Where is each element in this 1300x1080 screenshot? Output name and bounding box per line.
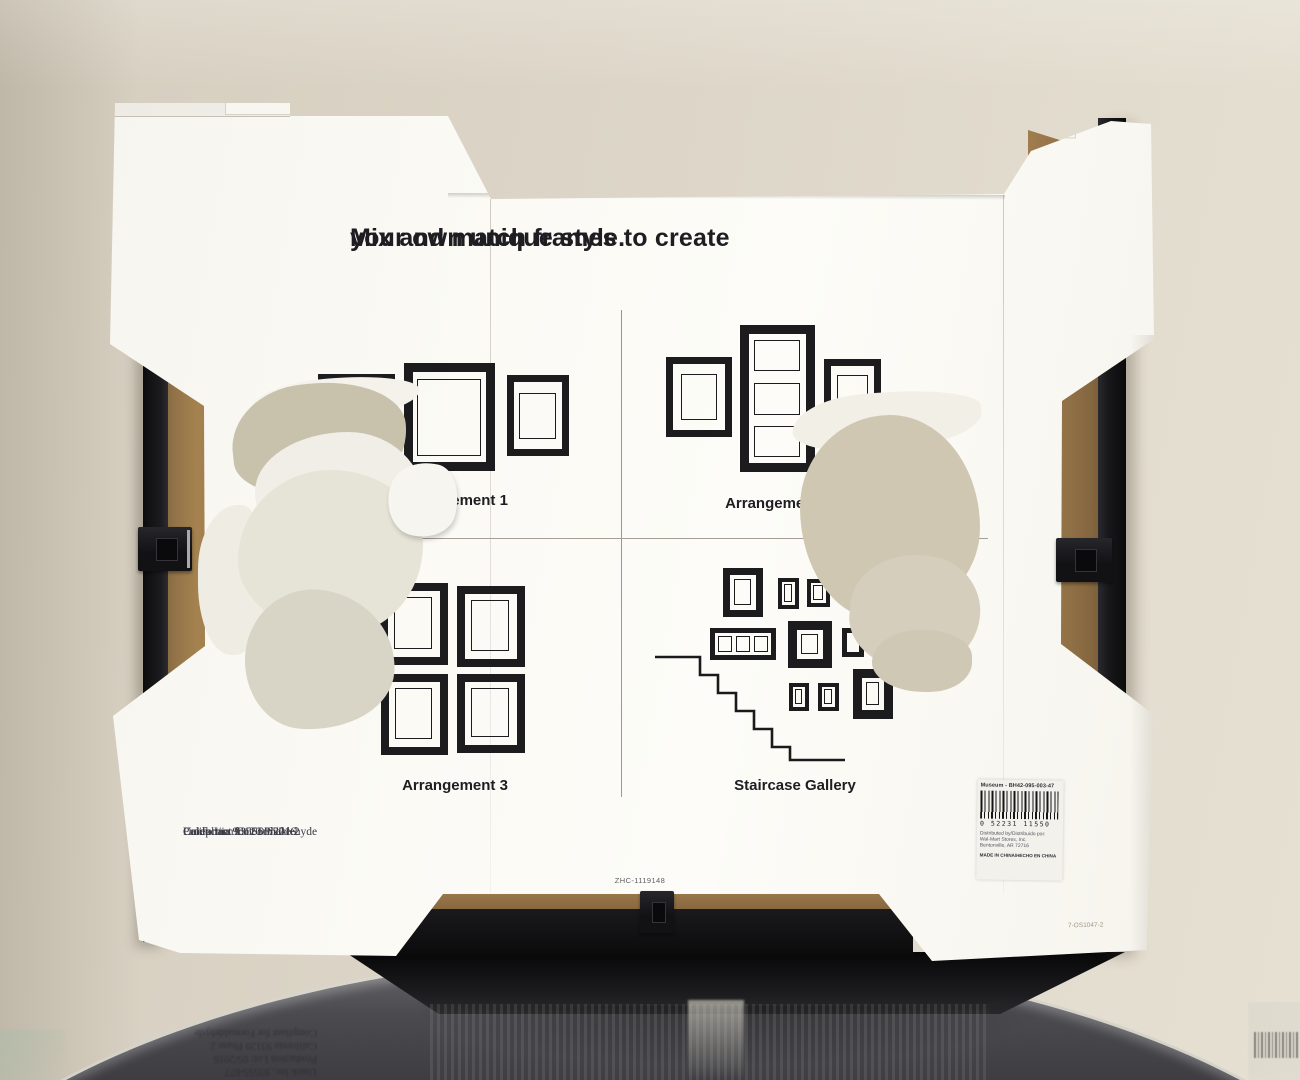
frame-glyph-opening: [734, 579, 751, 605]
frame-glyph-opening: [784, 584, 792, 602]
frame-glyph-opening: [718, 636, 732, 652]
frame-glyph: [666, 357, 732, 437]
frame-glyph-opening: [795, 689, 802, 704]
frame-glyph: [788, 621, 832, 668]
box-tab: [950, 120, 1014, 138]
clip-highlight: [187, 530, 190, 569]
frame-glyph-opening: [813, 585, 823, 600]
frame-glyph-opening: [471, 688, 509, 737]
wall-highlight-top: [0, 0, 1300, 90]
fine-print-line: Compliant for Formaldehyde: [183, 825, 317, 840]
photo-scene: Uniek Inc. 93555-677 Production Lot: 05/…: [0, 0, 1300, 1080]
frame-glyph-opening: [824, 689, 832, 704]
sku-text: Museum - BH42-095-003-47: [981, 782, 1061, 789]
distributor-text: Distributed by/Distribuido por: Wal-Mart…: [980, 830, 1060, 849]
glass-barcode-reflection: [1248, 1002, 1300, 1080]
frame-glyph-opening: [471, 600, 509, 651]
reflected-line: Production Lot: 05/2016: [112, 1052, 317, 1065]
glass-highlight-streak: [688, 1000, 744, 1080]
frame-glyph: [778, 578, 799, 609]
print-code: ZHC-1119148: [580, 876, 700, 885]
frame-glyph-opening: [417, 379, 481, 456]
frame-clip-right: [1056, 538, 1112, 582]
frame-clip-bottom: [640, 891, 674, 933]
frame-glyph-opening: [681, 374, 717, 420]
frame-glyph-triple: [710, 628, 776, 660]
die-cut-code: 7-OS1047-2: [1068, 922, 1104, 930]
frame-glyph-opening: [754, 383, 800, 415]
arrangement3-label: Arrangement 3: [345, 777, 565, 794]
frame-glyph: [789, 683, 809, 711]
glass-edge-tint: [0, 1030, 66, 1080]
distributor-line: Bentonville, AR 72716: [980, 842, 1060, 849]
box-tab: [225, 98, 292, 115]
box-edge-shade: [1130, 335, 1154, 955]
barcode-bars: [980, 790, 1058, 819]
clip-notch: [652, 902, 666, 923]
frame-glyph-opening: [801, 634, 818, 654]
frame-glyph-opening: [395, 688, 432, 739]
barcode-digits: 0 52231 11550: [980, 819, 1060, 828]
staircase-gallery-label: Staircase Gallery: [685, 777, 905, 794]
barcode-label: Museum - BH42-095-003-47 0 52231 11550 D…: [976, 779, 1063, 880]
reflected-barcode-bars: [1252, 1032, 1298, 1058]
frame-glyph: [818, 683, 839, 711]
reflected-line: California 93120 Phase 2: [112, 1039, 317, 1052]
frame-glyph-opening: [754, 340, 800, 371]
frame-glyph-opening: [866, 682, 879, 705]
headline-line2: your own unique style.: [350, 221, 625, 255]
frame-glyph-triple: [740, 325, 815, 472]
frame-glyph: [457, 674, 525, 753]
glass-text-reflection: Uniek Inc. 93555-677 Production Lot: 05/…: [112, 1006, 317, 1078]
quadrant-divider-vertical: [621, 310, 622, 797]
frame-glyph-opening: [754, 636, 768, 652]
clip-notch: [156, 538, 177, 560]
clip-notch: [1075, 549, 1097, 571]
frame-glyph: [457, 586, 525, 667]
frame-glyph-opening: [736, 636, 750, 652]
frame-glyph: [404, 363, 495, 471]
frame-glyph-opening: [519, 393, 556, 439]
reflected-line: Uniek Inc. 93555-677: [112, 1065, 317, 1078]
country-of-origin-text: MADE IN CHINA/HECHO EN CHINA: [980, 852, 1060, 858]
box-fold-shadow: [448, 193, 1005, 200]
torn-paper-patch: [872, 630, 972, 692]
frame-glyph: [507, 375, 569, 456]
frame-clip-left: [138, 527, 192, 571]
frame-glyph: [723, 568, 763, 617]
reflected-line: Compliant for Formaldehyde: [112, 1026, 317, 1039]
